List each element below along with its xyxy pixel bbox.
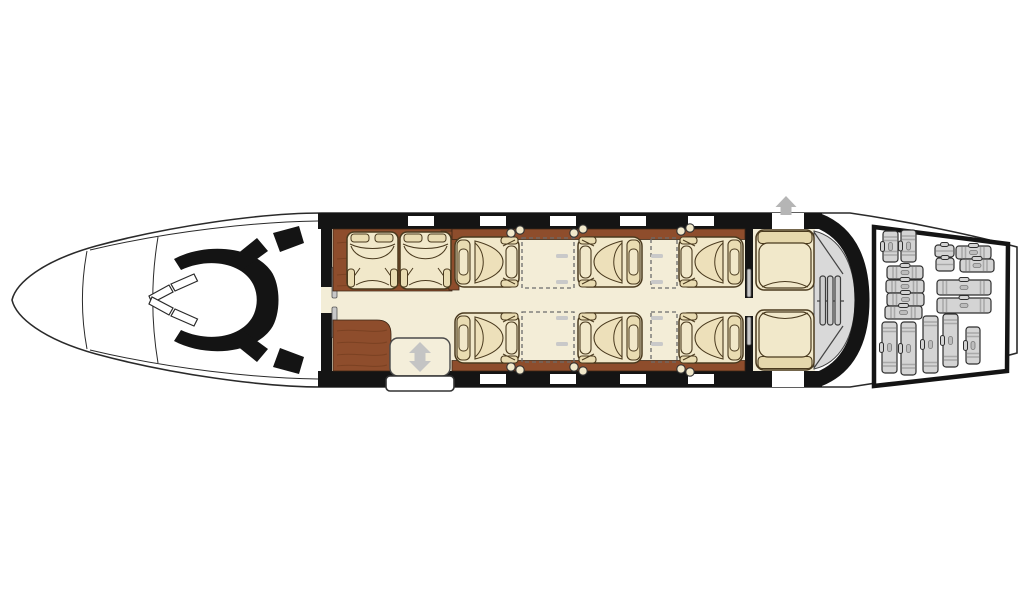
sidewall-ledge — [651, 280, 663, 284]
cabin-window — [550, 374, 576, 384]
seat-part — [351, 234, 369, 242]
seat-part — [580, 322, 591, 354]
suitcase-handle — [959, 278, 969, 282]
aft-cabin-divider-doorway — [745, 298, 753, 316]
cabin-window — [550, 216, 576, 226]
sidewall-ledge — [556, 254, 568, 258]
suitcase — [885, 304, 922, 320]
cupholder — [507, 363, 515, 371]
suitcase-latch — [929, 341, 933, 349]
seat-part — [629, 249, 638, 275]
sidewall-ledge — [651, 316, 663, 320]
aft-cabin-divider-pocket-door — [747, 269, 751, 297]
aft-bench-right — [756, 310, 814, 370]
seat-part — [580, 246, 591, 278]
wardrobe-louver — [828, 276, 834, 325]
suitcase-latch — [971, 342, 975, 350]
aft-bench-left — [756, 230, 814, 290]
seat-part — [730, 325, 739, 351]
cupholder — [677, 227, 685, 235]
divan-seat-1 — [347, 232, 398, 289]
suitcase-latch — [901, 285, 909, 289]
suitcase-handle — [969, 244, 979, 248]
club-seat-mid-right — [578, 313, 642, 363]
galley-cabinet — [333, 320, 391, 371]
suitcase — [941, 314, 959, 367]
seat-part — [444, 269, 451, 287]
sidewall-ledge — [651, 254, 663, 258]
suitcase-latch — [901, 271, 909, 275]
suitcase-latch — [949, 337, 953, 345]
suitcase-handle — [941, 336, 945, 346]
aircraft-floorplan — [0, 0, 1024, 600]
seat-part — [758, 232, 812, 244]
suitcase-handle — [881, 242, 885, 252]
club-seat-aft-left — [679, 237, 743, 287]
suitcase-handle — [899, 304, 909, 308]
bag-handle — [941, 256, 949, 260]
suitcase-handle — [880, 343, 884, 353]
sidewall-ledge — [556, 316, 568, 320]
overwing-exit-opening — [772, 371, 804, 387]
sidewall-ledge — [651, 342, 663, 346]
club-seat-fwd-right — [455, 313, 519, 363]
seat-part — [404, 234, 422, 242]
club-seat-fwd-left — [455, 237, 519, 287]
suitcase-latch — [888, 344, 892, 352]
cabin-window — [408, 216, 434, 226]
seat-part — [681, 322, 692, 354]
suitcase-handle — [900, 278, 910, 282]
divan-seat-2 — [400, 232, 451, 289]
suitcase-handle — [900, 264, 910, 268]
overwing-exit-opening — [772, 213, 804, 229]
entry-door-sill — [386, 376, 454, 391]
suitcase-latch — [970, 251, 978, 255]
suitcase-handle — [964, 341, 968, 351]
suitcase — [937, 296, 991, 314]
suitcase-handle — [921, 340, 925, 350]
seat-part — [428, 234, 446, 242]
aft-cabin-divider-pocket-door — [747, 317, 751, 345]
cupholder — [579, 367, 587, 375]
suitcase — [935, 243, 954, 258]
cabin-window — [620, 374, 646, 384]
cupholder — [686, 224, 694, 232]
wardrobe-louver — [820, 276, 826, 325]
sidewall-ledge — [556, 280, 568, 284]
suitcase-handle — [901, 291, 911, 295]
seat-part — [459, 325, 468, 351]
seat-part — [375, 234, 393, 242]
suitcase-latch — [960, 304, 968, 308]
bag-handle — [941, 243, 949, 247]
suitcase-latch — [902, 298, 910, 302]
suitcase — [880, 322, 898, 373]
cabin-window — [480, 216, 506, 226]
seat-part — [730, 249, 739, 275]
suitcase-handle — [972, 257, 982, 261]
suitcase-handle — [959, 296, 969, 300]
seat-part — [681, 246, 692, 278]
seat-part — [401, 269, 408, 287]
cupholder — [677, 365, 685, 373]
cupholder — [579, 225, 587, 233]
seat-part — [459, 249, 468, 275]
seat-part — [348, 269, 355, 287]
seat-part — [506, 246, 517, 278]
wardrobe-louver — [835, 276, 841, 325]
seat-part — [629, 325, 638, 351]
suitcase-latch — [907, 242, 911, 250]
suitcase-latch — [900, 311, 908, 315]
cabin-window — [620, 216, 646, 226]
suitcase-latch — [960, 286, 968, 290]
sidewall-ledge — [556, 342, 568, 346]
seat-part — [391, 269, 398, 287]
club-seat-mid-left — [578, 237, 642, 287]
suitcase-handle — [899, 241, 903, 251]
overwing-exit-arrow-icon — [776, 196, 797, 215]
suitcase — [899, 322, 917, 375]
suitcase — [960, 257, 994, 273]
cupholder — [686, 368, 694, 376]
suitcase — [964, 327, 981, 364]
floorplan-stage — [0, 0, 1024, 600]
cupholder — [516, 226, 524, 234]
seat-part — [758, 357, 812, 369]
cupholder — [570, 229, 578, 237]
cupholder — [516, 366, 524, 374]
suitcase — [936, 256, 954, 272]
suitcase — [937, 278, 991, 296]
cupholder — [507, 229, 515, 237]
suitcase — [921, 316, 939, 373]
suitcase-latch — [889, 243, 893, 251]
cupholder — [570, 363, 578, 371]
seat-part — [506, 322, 517, 354]
suitcase-latch — [973, 264, 981, 268]
club-seat-aft-right — [679, 313, 743, 363]
suitcase — [887, 264, 923, 280]
cabin-window — [480, 374, 506, 384]
suitcase — [881, 231, 899, 262]
suitcase-handle — [899, 344, 903, 354]
forward-bulkhead-doorway — [321, 287, 332, 313]
suitcase — [899, 230, 917, 262]
suitcase-latch — [907, 345, 911, 353]
